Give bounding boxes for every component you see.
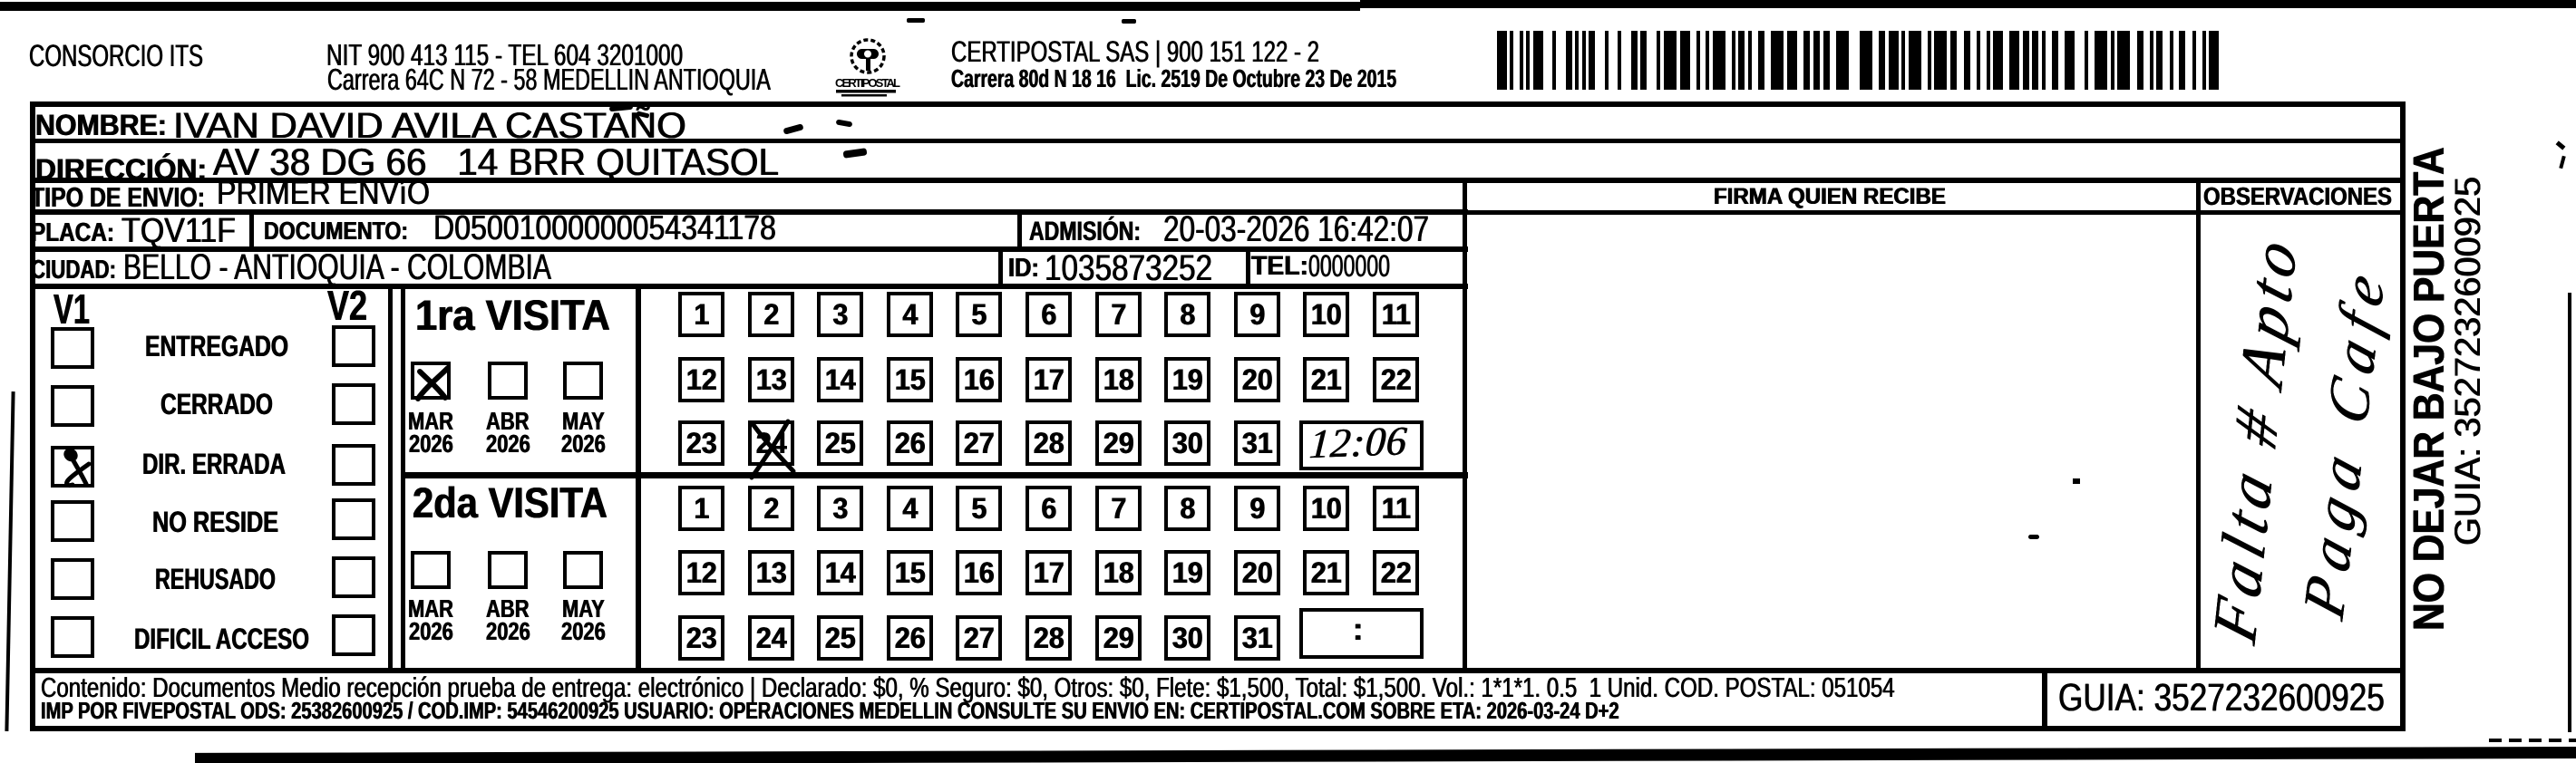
- svg-text:CERTIPOSTAL: CERTIPOSTAL: [835, 76, 900, 90]
